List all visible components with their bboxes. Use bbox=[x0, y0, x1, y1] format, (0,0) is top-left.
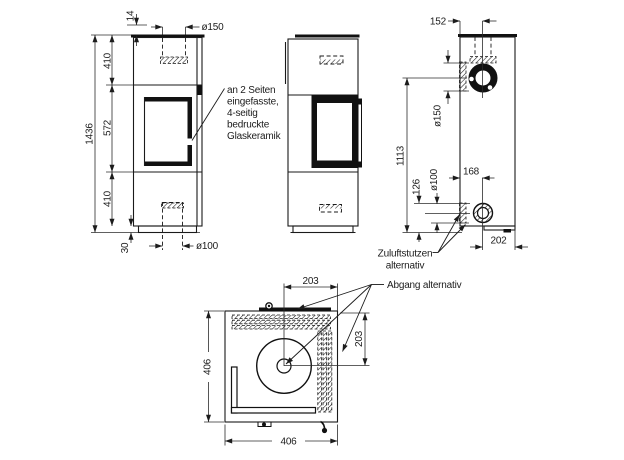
glass-note-line5: Glaskeramik bbox=[227, 131, 282, 142]
rear-air-side-knockout bbox=[460, 203, 467, 223]
front-view: 1436 410 572 410 14 30 ø150 ø100 bbox=[85, 10, 225, 253]
dim-front-lower: 410 bbox=[103, 190, 114, 207]
side-base-plinth bbox=[293, 226, 353, 233]
top-view: 203 203 406 406 bbox=[203, 276, 370, 448]
side-air-stub bbox=[320, 205, 342, 213]
dim-front-top-plate: 14 bbox=[126, 10, 137, 21]
front-door-hinge-tick bbox=[198, 86, 203, 96]
front-flue-stub bbox=[161, 38, 188, 64]
front-base-plinth bbox=[139, 226, 197, 233]
dim-rear-flue-diameter: ø150 bbox=[433, 104, 444, 127]
glass-note-line4: bedruckte bbox=[227, 120, 270, 131]
dim-top-depth: 406 bbox=[203, 358, 214, 375]
abgang-note-line1: Abgang alternativ bbox=[387, 280, 462, 291]
rear-view: 152 ø150 1113 126 ø100 168 202 bbox=[396, 17, 529, 251]
dim-front-base: 30 bbox=[120, 242, 131, 253]
dim-rear-air-left: 168 bbox=[463, 167, 480, 178]
side-flue-stub bbox=[320, 56, 343, 64]
dim-rear-flue-offset: 152 bbox=[430, 17, 447, 28]
glass-note: an 2 Seiten eingefasste, 4-seitig bedruc… bbox=[192, 85, 282, 142]
side-door-handle bbox=[358, 99, 362, 167]
dim-front-upper: 410 bbox=[103, 52, 114, 69]
dim-front-window: 572 bbox=[103, 119, 114, 136]
side-door bbox=[312, 95, 362, 168]
technical-drawing: 1436 410 572 410 14 30 ø150 ø100 an 2 Se… bbox=[0, 0, 624, 460]
zuluft-note-line2: alternativ bbox=[386, 261, 425, 272]
glass-note-line3: 4-seitig bbox=[227, 108, 258, 119]
glass-note-line1: an 2 Seiten bbox=[227, 85, 275, 96]
dim-rear-air-height: 126 bbox=[412, 178, 423, 195]
dim-front-air-diameter: ø100 bbox=[196, 241, 219, 252]
front-glass-window bbox=[144, 97, 193, 166]
side-view bbox=[286, 36, 362, 233]
glass-note-line2: eingefasste, bbox=[227, 97, 279, 108]
dim-rear-air-diameter: ø100 bbox=[429, 168, 440, 191]
rear-flue-side-knockout bbox=[460, 62, 467, 91]
zuluft-note: Zuluftstutzen alternativ bbox=[378, 213, 468, 271]
zuluft-note-line1: Zuluftstutzen bbox=[378, 249, 433, 260]
dim-front-flue-diameter: ø150 bbox=[202, 22, 225, 33]
rear-air-inlet bbox=[474, 204, 493, 223]
dim-front-total-height: 1436 bbox=[85, 123, 96, 145]
dim-top-width: 406 bbox=[280, 437, 297, 448]
dim-top-flue-y: 203 bbox=[354, 330, 365, 347]
dim-rear-flue-height: 1113 bbox=[396, 145, 407, 166]
top-l-bracket bbox=[232, 367, 316, 413]
dim-rear-air-right: 202 bbox=[490, 236, 507, 247]
dim-top-flue-x: 203 bbox=[302, 276, 319, 287]
stove-dimension-drawing-page: 1436 410 572 410 14 30 ø150 ø100 an 2 Se… bbox=[0, 0, 624, 460]
